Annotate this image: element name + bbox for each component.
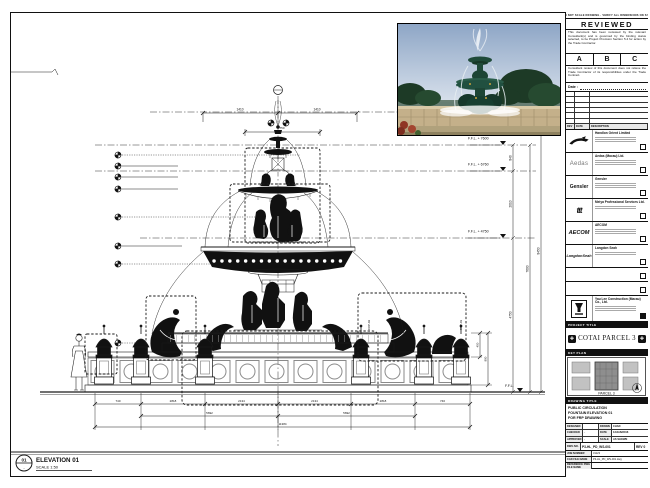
designed-value: [583, 424, 599, 429]
consultant-box-meiya: ttt Meiya Professional Services Ltd.: [566, 199, 648, 222]
elevation-tag-sheet: -: [23, 465, 25, 470]
drawing-title-line-3: FOR FRP DRAWING: [568, 416, 646, 421]
dim-right-1: 840: [509, 155, 513, 161]
dim-top-left: 1410: [236, 108, 243, 112]
project-title-box: ✚ COTAI PARCEL 3 ✚: [566, 328, 648, 350]
aecom-logo: AECOM: [566, 222, 593, 244]
level-label-base: F.F.L.: [505, 384, 514, 388]
company-checkbox: [640, 144, 646, 150]
note-frp-a: FRP-02: [367, 320, 371, 331]
reviewed-stamp-text-1: This document has been reviewed by the r…: [566, 30, 648, 54]
company-name: AECOM: [595, 224, 646, 228]
level-label-3: F.F.L. + 4750: [468, 230, 489, 234]
approved-label: APPROVED: [566, 437, 583, 442]
dim-top-right: 1410: [313, 108, 320, 112]
langdonseah-logo: LangdonSeah: [566, 245, 593, 267]
cad-file-label: CAD FILE NAME: [566, 457, 592, 462]
company-checkbox: [640, 236, 646, 242]
grade-c: C: [621, 54, 648, 65]
company-checkbox: [640, 213, 646, 219]
contractor-name: Yau Lee Construction (Macau) Co., Ltd.: [595, 298, 646, 305]
lamp-post: [415, 325, 434, 384]
company-name: Gensler: [595, 178, 646, 182]
dim-bottom-5: 740: [440, 399, 445, 403]
stamp-date-row: Date :: [566, 83, 648, 92]
consultant-box-gensler: Gensler Gensler: [566, 176, 648, 199]
reviewed-stamp-title: REVIEWED: [566, 19, 648, 30]
dim-right-4: 7600: [526, 265, 530, 272]
revision-table: REV DATE DESCRIPTION: [566, 92, 648, 130]
job-number-value: 31123: [592, 451, 648, 456]
title-block: DO NOT SCALE DRAWING · VERIFY ALL DIMENS…: [565, 12, 648, 477]
gensler-logo: Gensler: [566, 176, 593, 198]
elevation-tag-number: 01: [21, 458, 27, 463]
company-address-lines: [595, 137, 646, 142]
company-checkbox: [640, 259, 646, 265]
revision-table-header: REV DATE DESCRIPTION: [566, 124, 648, 129]
dwg-no-label: DWG NO.: [566, 443, 581, 450]
checked-label: CHECKED: [566, 430, 583, 435]
consultant-box-empty: [566, 268, 648, 282]
consultant-box-aecom: AECOM AECOM: [566, 222, 648, 245]
approved-value: -: [583, 437, 599, 442]
date-blank-line: [580, 85, 646, 90]
grade-b: B: [594, 54, 622, 65]
dwg-no-value: P3-HL_PD_WS-001: [581, 443, 635, 450]
cad-file-value: P3-HL_PD_WS-001.dwg: [592, 457, 648, 462]
fountain-photo-graphic: [398, 24, 560, 135]
date-label: Date :: [568, 85, 578, 89]
company-checkbox: [640, 190, 646, 196]
aedas-logo: Aedas: [566, 153, 593, 175]
dwg-number-row: DWG NO. P3-HL_PD_WS-001 REV 0: [566, 443, 648, 451]
elevation-scale: SCALE 1:50: [36, 465, 59, 470]
checked-value: -: [583, 430, 599, 435]
title-block-filler: [566, 469, 648, 477]
company-name: Handlon Orient Limited: [595, 132, 646, 136]
dim-bottom-2: 2134: [238, 399, 245, 403]
break-line: [10, 69, 58, 75]
company-name: Meiya Professional Services Ltd.: [595, 201, 646, 205]
grade-a: A: [566, 54, 594, 65]
sheet-note: DO NOT SCALE DRAWING · VERIFY ALL DIMENS…: [566, 12, 648, 19]
consultant-box-aedas: Aedas Aedas (Macau) Ltd.: [566, 153, 648, 176]
ornament-icon: ✚: [568, 335, 576, 343]
ornament-icon: ✚: [638, 335, 646, 343]
key-plan: PARCEL 3: [566, 356, 648, 398]
drawing-sheet: 1410 1410 750 F.F.L. + 7600 F.F.L. + 676…: [0, 0, 650, 488]
handlon-logo-icon: [566, 130, 593, 152]
drawn-value: CHAD: [612, 424, 648, 429]
date-field-label: DATE: [599, 430, 612, 435]
description-col-header: DESCRIPTION: [590, 124, 648, 129]
dim-lamp-1: 450: [476, 342, 480, 347]
company-name: Aedas (Macau) Ltd.: [595, 155, 646, 159]
signoff-fields: DESIGNED DRAWN CHAD CHECKED - DATE 12/JA…: [566, 424, 648, 443]
rev-col-header: REV: [566, 124, 575, 129]
dim-lamp-2: 890: [484, 356, 488, 361]
note-frp-b: FRP-03: [459, 320, 463, 331]
dim-bottom-4: 2818: [380, 399, 387, 403]
dim-right-5: 8450: [537, 247, 541, 254]
elevation-title: ELEVATION 01: [36, 457, 80, 464]
dim-bottom-3: 2134: [311, 399, 318, 403]
drawing-texts: 1410 1410 750 F.F.L. + 7600 F.F.L. + 676…: [21, 108, 540, 471]
drawing-title: PUBLIC CIRCULATION FOUNTAIN ELEVATION 01…: [566, 404, 648, 424]
job-number-label: JOB NUMBER: [566, 451, 592, 456]
company-name: Langdon Seah: [595, 247, 646, 251]
consultant-box-langdonseah: LangdonSeah Langdon Seah: [566, 245, 648, 268]
reviewed-stamp-text-2: Consultant review of this document does …: [566, 66, 648, 83]
dim-right-2: 2010: [509, 200, 513, 207]
dim-pkg: 750: [279, 126, 284, 130]
dim-bottom-0: 740: [115, 399, 120, 403]
level-label-1: F.F.L. + 7600: [468, 137, 489, 141]
company-checkbox: [640, 167, 646, 173]
scale-label: SCALE: [599, 437, 612, 442]
lamp-post: [452, 325, 471, 384]
company-address-lines: [595, 206, 646, 209]
date-col-header: DATE: [575, 124, 590, 129]
review-grade-boxes: A B C: [566, 54, 648, 66]
meiya-logo: ttt: [566, 199, 593, 221]
right-dimension-chain: [468, 110, 543, 394]
company-address-lines: [595, 252, 646, 255]
dim-mid-0: 5692: [206, 411, 213, 415]
key-plan-note: PARCEL 3: [598, 392, 615, 396]
consultant-box-empty: [566, 282, 648, 296]
company-checkbox: [640, 273, 646, 279]
company-address-lines: [595, 183, 646, 188]
consultant-box-handlon: Handlon Orient Limited: [566, 130, 648, 153]
lamp-post: [132, 325, 151, 384]
company-checkbox: [640, 287, 646, 293]
dim-right-3: 4750: [509, 311, 513, 318]
dim-total: 11384: [278, 422, 286, 426]
contractor-checkbox: [640, 313, 646, 319]
contractor-address-lines: [595, 306, 646, 311]
dim-mid-1: 5692: [343, 411, 350, 415]
reference-photo: [397, 23, 561, 136]
level-label-2: F.F.L. + 6760: [468, 163, 489, 167]
company-address-lines: [595, 229, 646, 234]
company-address-lines: [595, 160, 646, 165]
scale-value: AS SHOWN: [612, 437, 648, 442]
drawn-label: DRAWN: [599, 424, 612, 429]
date-value: 12/JAN/2016: [612, 430, 648, 435]
yaulee-logo-icon: [566, 296, 593, 321]
project-name: COTAI PARCEL 3: [576, 335, 638, 342]
designed-label: DESIGNED: [566, 424, 583, 429]
contractor-box: Yau Lee Construction (Macau) Co., Ltd.: [566, 296, 648, 322]
rev-value: REV 0: [635, 443, 648, 450]
dim-bottom-1: 2818: [170, 399, 177, 403]
